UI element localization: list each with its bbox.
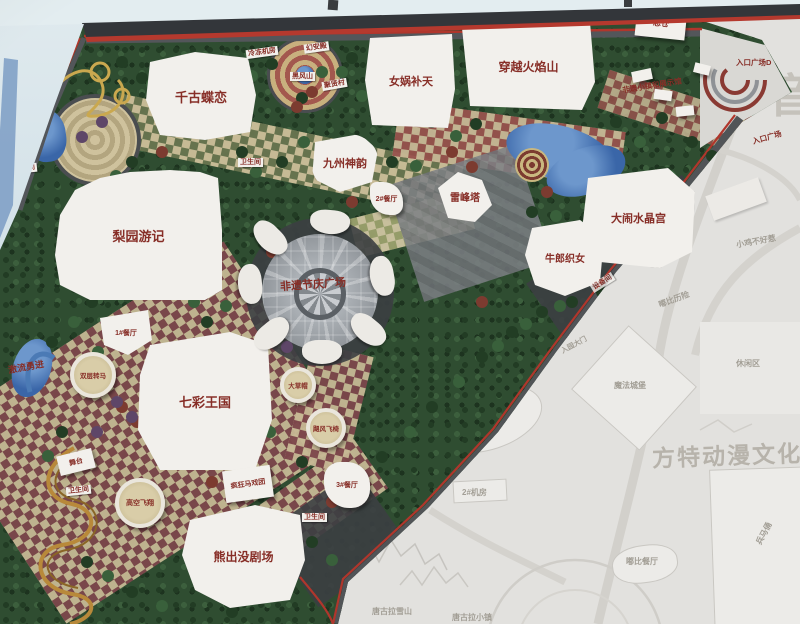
plaza-petal <box>302 340 342 364</box>
fantawild-watermark: 方特动漫文化科技 <box>651 433 800 474</box>
chip-weishengjian-4: 卫生间 <box>302 513 327 522</box>
frame-clip-right <box>624 0 632 7</box>
leisure-area-label: 休闲区 <box>736 358 760 369</box>
maxituan-label: 疯狂马戏团 <box>230 477 266 492</box>
canting2-label: 2#餐厅 <box>376 194 398 204</box>
building-qicai-wangguo: 七彩王国 <box>138 332 272 470</box>
ride-shuangceng-zhuanma: 双层转马 <box>70 352 116 398</box>
qiangu-dielian-label: 千古蝶恋 <box>175 87 227 106</box>
leifengta-label: 雷峰塔 <box>450 189 480 204</box>
heritage-town-building <box>676 105 695 117</box>
nvwa-butian-label: 女娲补天 <box>389 73 433 89</box>
shuangceng-zhuanma-label: 双层转马 <box>80 370 106 380</box>
jufeng-feiyi-label: 飓风飞椅 <box>313 423 339 433</box>
building-chuanyue-huoyanshan: 穿越火焰山 <box>462 22 595 110</box>
ride-gaokong-feixiang: 高空飞翔 <box>115 478 165 528</box>
frame-clip-left <box>328 0 339 10</box>
canting1-label: 1#餐厅 <box>115 328 137 338</box>
building-nvwa-butian: 女娲补天 <box>365 34 457 128</box>
machine-room2-label: 2#机房 <box>462 487 487 498</box>
chuanyue-huoyanshan-label: 穿越火焰山 <box>498 58 558 75</box>
wutai-label: 舞台 <box>68 455 84 468</box>
terracotta-hall-outline <box>709 466 800 624</box>
jiuzhou-shenyun-label: 九州神韵 <box>323 155 367 171</box>
chip-heifengshan: 黑风山 <box>290 72 315 81</box>
dacaomao-label: 大草帽 <box>288 380 308 390</box>
magic-castle-label: 魔法城堡 <box>614 380 646 391</box>
niulang-zhinv-label: 牛郎织女 <box>545 250 585 265</box>
entrance-d-label: 入口广场D <box>736 57 771 68</box>
qicai-wangguo-label: 七彩王国 <box>179 392 231 411</box>
building-xiongchumo: 熊出没剧场 <box>182 505 305 608</box>
ride-dacaomao: 大草帽 <box>280 367 316 403</box>
building-maxituan: 疯狂马戏团 <box>222 465 274 503</box>
building-liyuan-youji: 梨园游记 <box>55 170 222 300</box>
canting3-label: 3#餐厅 <box>336 480 358 490</box>
park-map-photo: 储物间 幼儿池 综合服务楼 梦幻大水寨 造浪池 4#餐厅 魔法城堡 休闲区 入园… <box>0 0 800 624</box>
liyuan-youji-label: 梨园游记 <box>112 226 164 245</box>
xiongchumo-label: 熊出没剧场 <box>213 548 273 565</box>
ride-jufeng-feiyi: 飓风飞椅 <box>306 408 346 448</box>
gaokong-feixiang-label: 高空飞翔 <box>126 498 154 508</box>
building-qiangu-dielian: 千古蝶恋 <box>146 52 256 140</box>
dubi-restaurant-label: 嘟比餐厅 <box>626 556 658 567</box>
snow-mountain-label: 唐古拉雪山 <box>372 606 412 617</box>
danao-shuijinggong-label: 大闹水晶宫 <box>611 210 666 226</box>
snow-town-label: 唐古拉小镇 <box>452 612 492 623</box>
chip-weishengjian-2: 卫生间 <box>238 158 263 167</box>
